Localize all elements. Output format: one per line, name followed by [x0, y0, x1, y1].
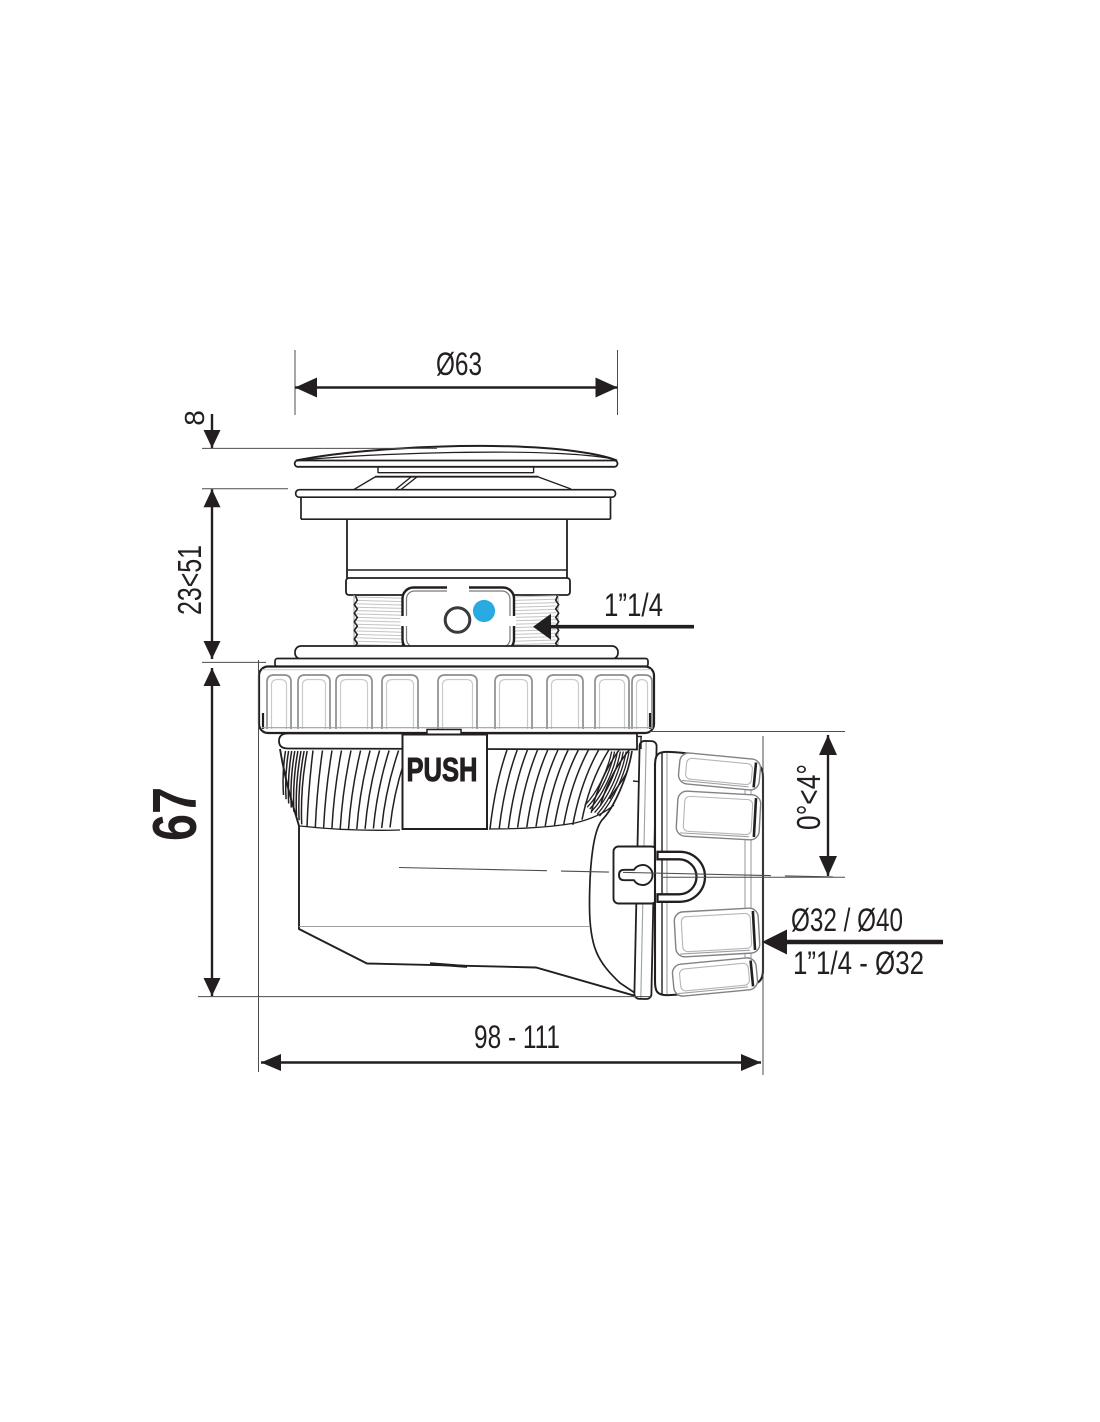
svg-text:0°<4°: 0°<4°	[790, 764, 827, 830]
svg-text:Ø63: Ø63	[436, 346, 482, 382]
svg-text:98 - 111: 98 - 111	[474, 1019, 560, 1055]
svg-text:8: 8	[179, 410, 210, 426]
svg-text:23<51: 23<51	[171, 545, 208, 615]
svg-text:PUSH: PUSH	[407, 751, 478, 788]
svg-text:1”1/4: 1”1/4	[604, 587, 663, 623]
svg-text:67: 67	[141, 787, 210, 841]
svg-text:1”1/4 - Ø32: 1”1/4 - Ø32	[793, 945, 924, 981]
svg-text:Ø32 / Ø40: Ø32 / Ø40	[791, 902, 903, 938]
